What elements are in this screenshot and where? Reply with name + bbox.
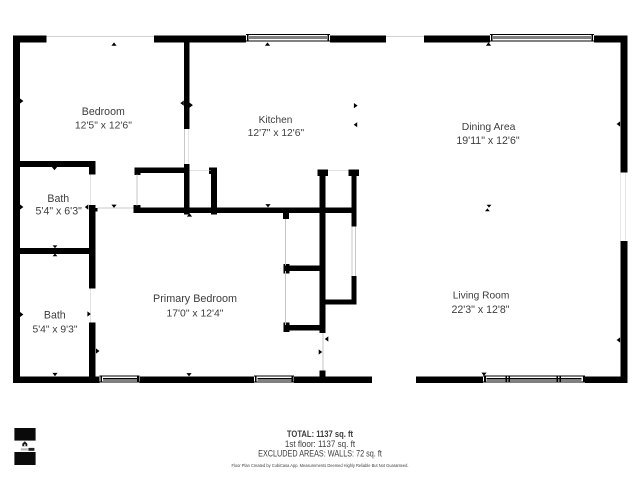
svg-text:12'7" x 12'6": 12'7" x 12'6" bbox=[248, 128, 305, 139]
svg-text:Living Room: Living Room bbox=[453, 291, 510, 302]
svg-text:Bath: Bath bbox=[47, 193, 69, 205]
svg-text:19'11" x 12'6": 19'11" x 12'6" bbox=[456, 135, 519, 147]
svg-text:12'5" x 12'6": 12'5" x 12'6" bbox=[75, 120, 132, 131]
svg-text:Bedroom: Bedroom bbox=[82, 106, 125, 118]
svg-text:Primary Bedroom: Primary Bedroom bbox=[153, 293, 237, 305]
svg-text:EXCLUDED AREAS: WALLS: 72 sq.: EXCLUDED AREAS: WALLS: 72 sq. ft bbox=[258, 449, 382, 460]
svg-text:17'0" x 12'4": 17'0" x 12'4" bbox=[167, 309, 224, 320]
svg-text:5'4" x 6'3": 5'4" x 6'3" bbox=[36, 206, 83, 218]
svg-text:22'3" x 12'8": 22'3" x 12'8" bbox=[451, 304, 509, 316]
svg-text:5'4" x 9'3": 5'4" x 9'3" bbox=[32, 325, 77, 336]
svg-text:Kitchen: Kitchen bbox=[259, 115, 293, 126]
svg-text:Bath: Bath bbox=[44, 309, 66, 321]
svg-text:Floor Plan Created by CubiCasa: Floor Plan Created by CubiCasa App. Meas… bbox=[232, 463, 409, 468]
svg-text:Dining Area: Dining Area bbox=[462, 122, 516, 133]
